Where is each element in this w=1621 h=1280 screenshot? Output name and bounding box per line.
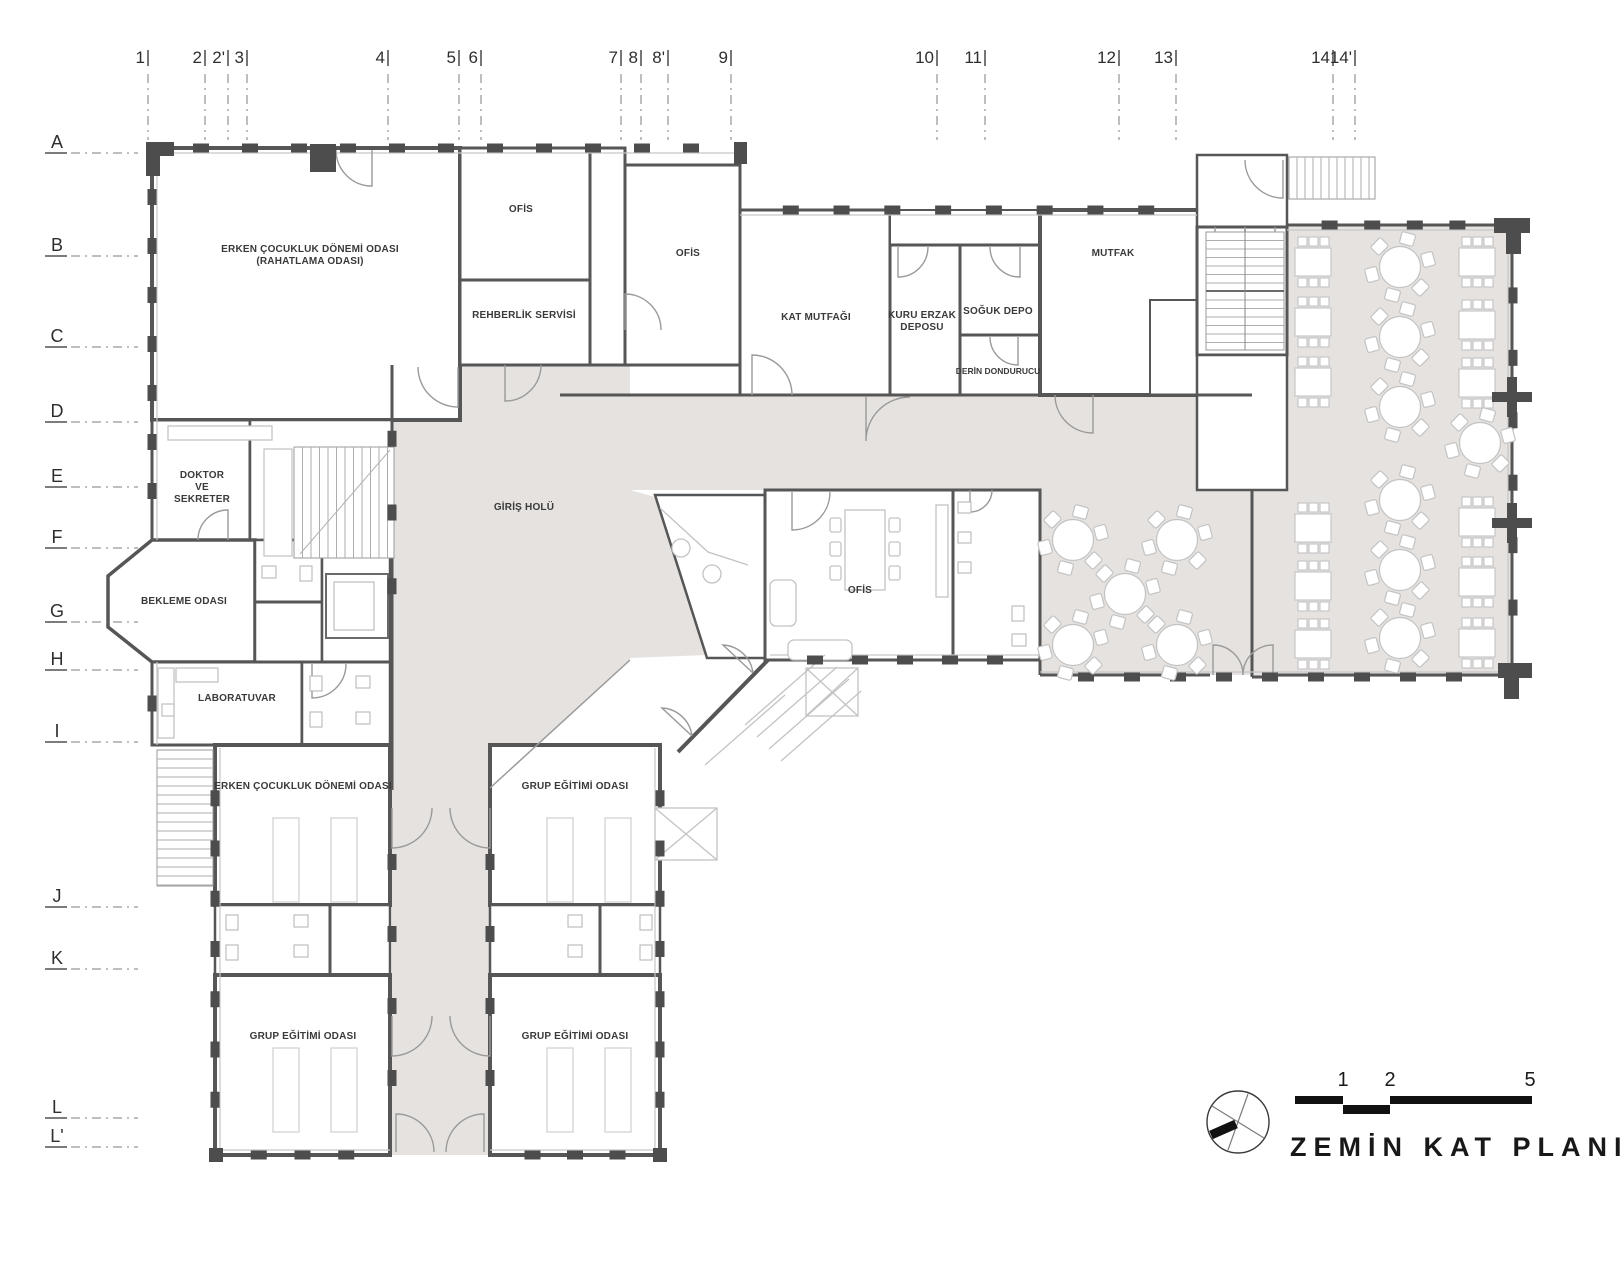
wall-pier <box>388 1070 397 1086</box>
room-label-guidance-service: REHBERLİK SERVİSİ <box>472 308 576 321</box>
wall-pier <box>211 1092 220 1108</box>
wall-pier <box>1138 206 1154 215</box>
wall-pier <box>193 144 209 153</box>
room-label-deep-freezer: DERİN DONDURUCU <box>956 366 1041 376</box>
wall-pier <box>656 991 665 1007</box>
sofa <box>770 580 796 626</box>
seat <box>1473 278 1482 287</box>
wall-pier <box>148 434 157 450</box>
chair <box>830 518 841 532</box>
classroom-mat <box>331 1048 357 1132</box>
table-top <box>1459 508 1495 536</box>
room-label-office-1: OFİS <box>509 202 533 215</box>
seat <box>1484 497 1493 506</box>
wall-pier <box>1509 287 1518 303</box>
entrance-diagonal-wall <box>678 660 768 752</box>
seat <box>1484 598 1493 607</box>
seat <box>1298 297 1307 306</box>
classroom-mat <box>547 1048 573 1132</box>
wall-pier <box>656 1092 665 1108</box>
table-top <box>1295 514 1331 542</box>
wall-pier <box>388 854 397 870</box>
table-top <box>1459 311 1495 339</box>
seat <box>1462 598 1471 607</box>
seat <box>1298 338 1307 347</box>
seat <box>1320 619 1329 628</box>
grid-column-label: 1 <box>136 48 145 67</box>
wall-pier <box>211 891 220 907</box>
table-top <box>1380 618 1421 659</box>
room-label-cold-storage: SOĞUK DEPO <box>963 304 1033 317</box>
wall-pier <box>1354 673 1370 682</box>
seat <box>1462 399 1471 408</box>
seat <box>1298 398 1307 407</box>
scale-number-5: 5 <box>1524 1069 1535 1091</box>
seat <box>1298 544 1307 553</box>
seat <box>1320 237 1329 246</box>
seat <box>1462 341 1471 350</box>
seat <box>1320 660 1329 669</box>
grid-column-label: 2 <box>193 48 202 67</box>
table-top <box>1380 317 1421 358</box>
table-top <box>1459 568 1495 596</box>
chair <box>830 566 841 580</box>
wall-pier <box>987 656 1003 665</box>
grid-column-label: 3 <box>235 48 244 67</box>
bench-table-unit <box>1459 557 1495 607</box>
seat <box>1473 341 1482 350</box>
table-top <box>1053 520 1094 561</box>
seat <box>1309 278 1318 287</box>
wall-pier <box>852 656 868 665</box>
grid-column-label: 13 <box>1154 48 1173 67</box>
table-top <box>1053 625 1094 666</box>
wall-pier <box>389 144 405 153</box>
wall-pier <box>1407 221 1423 230</box>
classroom-mat <box>273 1048 299 1132</box>
stool <box>703 565 721 583</box>
wall-pier <box>242 144 258 153</box>
table-top <box>1459 248 1495 276</box>
grid-row-label: C <box>51 326 64 346</box>
table-top <box>1295 572 1331 600</box>
room-label-early-childhood-room: ERKEN ÇOCUKLUK DÖNEMİ ODASI <box>214 779 392 792</box>
seat <box>1484 538 1493 547</box>
seat <box>1320 338 1329 347</box>
classroom-mat <box>331 818 357 902</box>
seat <box>1320 278 1329 287</box>
classroom-mat <box>547 818 573 902</box>
seat <box>1298 237 1307 246</box>
table-top <box>1460 423 1501 464</box>
grid-row-label: A <box>51 132 63 152</box>
grid-row-label: F <box>52 527 63 547</box>
scale-segment <box>1343 1105 1390 1114</box>
wall-pier <box>610 1151 626 1160</box>
wall-pier <box>935 206 951 215</box>
wall-pier <box>1308 673 1324 682</box>
seat <box>1320 398 1329 407</box>
seat <box>1309 237 1318 246</box>
wall-pier <box>211 1042 220 1058</box>
wall-pier <box>295 1151 311 1160</box>
chair <box>830 542 841 556</box>
classroom-mat <box>273 818 299 902</box>
room-label-floor-kitchen: KAT MUTFAĞI <box>781 310 851 323</box>
seat <box>1309 338 1318 347</box>
seat <box>1473 598 1482 607</box>
lab-sink <box>162 704 174 716</box>
grid-row-label: E <box>51 466 63 486</box>
seat <box>1462 358 1471 367</box>
wall-pier <box>1364 221 1380 230</box>
grid-row-label: H <box>51 649 64 669</box>
grid-column-label: 14' <box>1330 48 1352 67</box>
lab-counter <box>176 668 218 682</box>
wall-pier <box>656 891 665 907</box>
office-shelf <box>936 505 948 597</box>
table-top <box>1380 387 1421 428</box>
seat <box>1309 561 1318 570</box>
grid-column-label: 12 <box>1097 48 1116 67</box>
seat <box>1473 557 1482 566</box>
room-guidance <box>460 280 590 365</box>
table-top <box>1459 629 1495 657</box>
grid-column-label: 14 <box>1311 48 1330 67</box>
wall-pier <box>525 1151 541 1160</box>
seat <box>1309 398 1318 407</box>
classroom-2 <box>490 745 660 905</box>
seat <box>1309 297 1318 306</box>
wall-pier <box>986 206 1002 215</box>
room-label-group-education-room-2: GRUP EĞİTİMİ ODASI <box>250 1029 357 1042</box>
wall-pier <box>1216 673 1232 682</box>
seat <box>1320 503 1329 512</box>
stair-landing <box>264 449 292 556</box>
wall-pier <box>807 656 823 665</box>
exterior-stair-left <box>157 750 213 886</box>
seat <box>1309 602 1318 611</box>
seat <box>1484 618 1493 627</box>
table-top <box>1157 625 1198 666</box>
bench-table-unit <box>1459 497 1495 547</box>
grid-column-label: 8 <box>629 48 638 67</box>
chair <box>889 566 900 580</box>
scale-bar: 1 2 5 <box>1295 1069 1536 1114</box>
seat <box>1298 503 1307 512</box>
seat <box>1473 399 1482 408</box>
wall-pier <box>388 505 397 521</box>
seat <box>1473 659 1482 668</box>
seat <box>1484 557 1493 566</box>
wall-pier <box>942 656 958 665</box>
table-top <box>1105 574 1146 615</box>
room-gap <box>590 148 625 365</box>
bench-table-unit <box>1295 357 1331 407</box>
wall-pier <box>1322 221 1338 230</box>
seat <box>1309 357 1318 366</box>
wall-pier <box>683 144 699 153</box>
wall-pier <box>148 483 157 499</box>
title-block: 1 2 5 ZEMİN KAT PLANI <box>1207 1069 1621 1162</box>
lab-wc-block <box>302 662 390 745</box>
seat <box>1473 237 1482 246</box>
grid-row-label: L' <box>50 1126 63 1146</box>
wall-pier <box>338 1151 354 1160</box>
wall-pier <box>211 841 220 857</box>
wall-pier <box>211 790 220 806</box>
seat <box>1484 341 1493 350</box>
seat <box>1462 557 1471 566</box>
exterior-stair-left-outline <box>157 750 213 886</box>
scale-number-2: 2 <box>1384 1069 1395 1091</box>
floor-plan-canvas: 122'3456788'9101112131414'ABCDEFGHIJKLL'… <box>0 0 1621 1280</box>
classroom-3 <box>215 975 390 1155</box>
seat <box>1473 358 1482 367</box>
seat <box>1320 561 1329 570</box>
seat <box>1309 660 1318 669</box>
seat <box>1320 297 1329 306</box>
bench-table-unit <box>1295 503 1331 553</box>
kitchen-subroom <box>1150 300 1200 395</box>
wall-pier <box>486 1070 495 1086</box>
seat <box>1484 399 1493 408</box>
room-label-entrance-hall: GİRİŞ HOLÜ <box>494 500 554 513</box>
wall-pier <box>291 144 307 153</box>
grid-column-label: 8' <box>652 48 665 67</box>
wall-pier <box>656 790 665 806</box>
chimney-block <box>310 144 336 172</box>
wall-pier <box>1449 221 1465 230</box>
wall-pier <box>148 189 157 205</box>
stair-vestibule <box>1197 355 1287 490</box>
doctor-closet <box>168 426 272 440</box>
lab-bench <box>158 668 174 738</box>
seat <box>1462 659 1471 668</box>
north-arrow-icon <box>1207 1091 1269 1153</box>
chair <box>889 518 900 532</box>
seat <box>1484 278 1493 287</box>
seat <box>1309 503 1318 512</box>
wall-pier <box>1400 673 1416 682</box>
scale-number-1: 1 <box>1337 1069 1348 1091</box>
grid-column-label: 11 <box>964 48 982 67</box>
room-floor-kitchen <box>740 210 890 395</box>
wall-pier <box>486 926 495 942</box>
room-label-group-education-room-1: GRUP EĞİTİMİ ODASI <box>522 779 629 792</box>
table-top <box>1295 308 1331 336</box>
classroom-1 <box>215 745 390 905</box>
wall-pier <box>567 1151 583 1160</box>
bench-table-unit <box>1459 237 1495 287</box>
seat <box>1298 619 1307 628</box>
wall-pier <box>148 696 157 712</box>
meeting-table <box>845 510 885 590</box>
room-office-2 <box>625 165 740 365</box>
plan-title: ZEMİN KAT PLANI <box>1290 1132 1621 1162</box>
grid-row-label: I <box>54 721 59 741</box>
wall-pier <box>1262 673 1278 682</box>
room-label-office-3: OFİS <box>848 583 872 596</box>
wall-pier <box>251 1151 267 1160</box>
wall-pier <box>1509 600 1518 616</box>
table-top <box>1380 550 1421 591</box>
seat <box>1473 618 1482 627</box>
main-staircase <box>1206 232 1284 350</box>
scale-segment <box>1295 1096 1343 1104</box>
wall-pier <box>438 144 454 153</box>
seat <box>1462 497 1471 506</box>
room-label-group-education-room-3: GRUP EĞİTİMİ ODASI <box>522 1029 629 1042</box>
seat <box>1309 619 1318 628</box>
table-top <box>1295 248 1331 276</box>
wall-pier <box>148 385 157 401</box>
wall-pier <box>1509 350 1518 366</box>
wall-pier <box>486 998 495 1014</box>
room-early-childhood-relax <box>152 148 460 420</box>
wall-pier <box>388 578 397 594</box>
wall-pier <box>148 287 157 303</box>
wall-pier <box>1087 206 1103 215</box>
left-staircase <box>264 447 394 558</box>
room-label-kitchen: MUTFAK <box>1092 248 1135 259</box>
wall-pier <box>388 926 397 942</box>
room-wc-block <box>953 490 1040 660</box>
wall-pier <box>585 144 601 153</box>
table-top <box>1157 520 1198 561</box>
seat <box>1298 602 1307 611</box>
table-top <box>1380 480 1421 521</box>
grid-column-label: 5 <box>447 48 456 67</box>
table-top <box>1295 630 1331 658</box>
seat <box>1320 357 1329 366</box>
classroom-mat <box>605 818 631 902</box>
grid-column-label: 9 <box>719 48 728 67</box>
stair-lobby <box>1197 155 1287 227</box>
seat <box>1473 497 1482 506</box>
grid-row-label: K <box>51 948 63 968</box>
table-top <box>1295 368 1331 396</box>
seat <box>1473 538 1482 547</box>
main-corridor-floor <box>560 395 1252 490</box>
wall-pier <box>388 998 397 1014</box>
seat <box>1462 538 1471 547</box>
exterior-stair-top-outline <box>1289 157 1375 199</box>
seat <box>1298 357 1307 366</box>
floor-plan-svg: 122'3456788'9101112131414'ABCDEFGHIJKLL'… <box>0 0 1621 1280</box>
wall-pier <box>487 144 503 153</box>
grid-column-label: 10 <box>915 48 934 67</box>
seat <box>1298 561 1307 570</box>
wall-pier <box>211 991 220 1007</box>
seat <box>1320 602 1329 611</box>
seat <box>1484 237 1493 246</box>
seat <box>1320 544 1329 553</box>
grid-row-label: G <box>50 601 64 621</box>
room-label-waiting-room: BEKLEME ODASI <box>141 596 227 607</box>
wall-pier <box>656 941 665 957</box>
scale-segment <box>1390 1096 1532 1104</box>
wall-pier <box>148 238 157 254</box>
wall-pier <box>834 206 850 215</box>
bench-table-unit <box>1295 619 1331 669</box>
wall-pier <box>897 656 913 665</box>
wall-pier <box>388 431 397 447</box>
wall-pier <box>656 841 665 857</box>
seat <box>1462 278 1471 287</box>
stool <box>672 539 690 557</box>
bench-table-unit <box>1459 618 1495 668</box>
elevator-car <box>334 582 374 630</box>
wall-pier <box>486 854 495 870</box>
room-label-laboratory: LABORATUVAR <box>198 693 277 704</box>
seat <box>1298 278 1307 287</box>
grid-column-label: 2' <box>212 48 225 67</box>
wall-pier <box>1446 673 1462 682</box>
bench-table-unit <box>1459 300 1495 350</box>
wall-pier <box>1124 673 1140 682</box>
bench-table-unit <box>1295 237 1331 287</box>
table-top <box>1459 369 1495 397</box>
room-deep-freezer <box>960 335 1040 395</box>
wall-pier <box>211 941 220 957</box>
seat <box>1462 618 1471 627</box>
seat <box>1462 237 1471 246</box>
bench-table-unit <box>1459 358 1495 408</box>
chair <box>889 542 900 556</box>
seat <box>1484 659 1493 668</box>
classroom-mat <box>605 1048 631 1132</box>
wall-pier <box>1509 475 1518 491</box>
wall-pier <box>148 336 157 352</box>
wall-pier <box>884 206 900 215</box>
grid-row-label: D <box>51 401 64 421</box>
classroom-4 <box>490 975 660 1155</box>
grid-column-label: 4 <box>376 48 385 67</box>
grid-row-label: B <box>51 235 63 255</box>
bench-table-unit <box>1295 297 1331 347</box>
grid-row-label: J <box>53 886 62 906</box>
wall-pier <box>1037 206 1053 215</box>
wall-pier <box>634 144 650 153</box>
grid-row-label: L <box>52 1097 62 1117</box>
wall-pier <box>340 144 356 153</box>
grid-column-label: 7 <box>609 48 618 67</box>
wall-pier <box>536 144 552 153</box>
table-top <box>1380 247 1421 288</box>
seat <box>1484 300 1493 309</box>
seat <box>1309 544 1318 553</box>
room-label-office-2: OFİS <box>676 246 700 259</box>
bench-table-unit <box>1295 561 1331 611</box>
grid-column-label: 6 <box>469 48 478 67</box>
seat <box>1484 358 1493 367</box>
exterior-stair-top <box>1289 157 1375 199</box>
seat <box>1298 660 1307 669</box>
wall-pier <box>783 206 799 215</box>
seat <box>1473 300 1482 309</box>
corridor-floor <box>392 788 490 1155</box>
wall-pier <box>656 1042 665 1058</box>
room-cold-storage <box>960 245 1040 335</box>
seat <box>1462 300 1471 309</box>
